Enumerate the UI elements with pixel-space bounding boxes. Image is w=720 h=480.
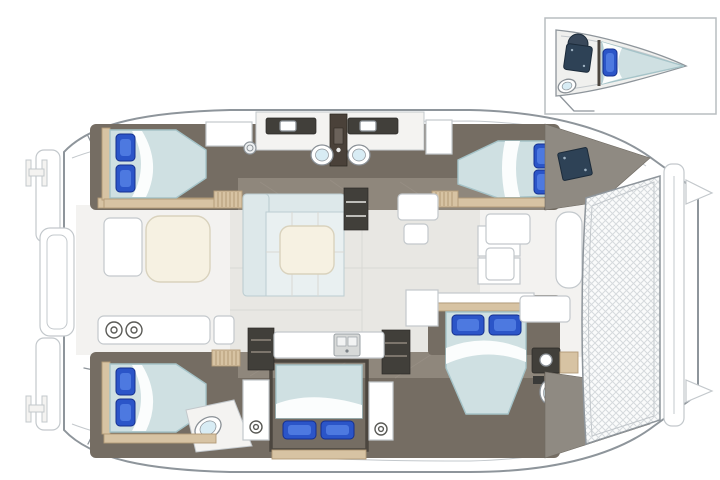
galley-sink-icon (334, 334, 360, 356)
bench-seat (486, 248, 514, 280)
bed-headboard (102, 128, 110, 200)
bench-seat (486, 214, 530, 244)
bow-lounge (556, 212, 582, 288)
sink-icon (360, 121, 376, 131)
porthole-icon (244, 142, 256, 154)
companionway-steps-icon (212, 350, 240, 366)
wardrobe (426, 120, 452, 154)
inset-shower-icon (563, 43, 592, 72)
shelf-unit (344, 188, 368, 230)
toilet-icon (311, 145, 333, 165)
bench-strip (272, 450, 366, 459)
pillow-icon (603, 49, 617, 76)
aft-starboard-cabin (102, 350, 252, 452)
pillow-icon (116, 165, 135, 192)
swim-platform-starboard (36, 338, 60, 430)
trampoline (582, 176, 660, 444)
wardrobe (206, 122, 252, 146)
fixture-block (533, 376, 544, 384)
bench-seat (104, 218, 142, 276)
pillow-icon (116, 399, 135, 426)
bench-strip (104, 434, 216, 443)
nav-seat (404, 224, 428, 244)
pillow-icon (116, 134, 135, 161)
bed-headboard (436, 303, 532, 311)
galley-cabinet (248, 328, 274, 370)
aft-bench (98, 316, 210, 344)
companionway-steps-icon (214, 191, 242, 208)
side-seat (214, 316, 234, 344)
pillow-icon (321, 421, 354, 439)
dining-table (146, 216, 210, 282)
coffee-table (280, 226, 334, 274)
side-cabinet (243, 380, 269, 440)
nav-desk (398, 194, 438, 220)
double-bed (110, 130, 206, 198)
pillow-icon (283, 421, 316, 439)
bench-strip (104, 199, 230, 208)
wood-floor-patch (560, 352, 578, 373)
pillow-icon (116, 368, 135, 395)
yacht-floorplan (0, 0, 720, 480)
headboard-wall (434, 293, 534, 303)
bench-seat (520, 296, 570, 322)
pillow-icon (489, 315, 521, 335)
galley-counter (274, 332, 384, 358)
bench-strip (456, 198, 552, 207)
toilet-icon (348, 145, 370, 165)
sink-icon (540, 354, 552, 366)
bed-headboard (102, 362, 110, 434)
bow-cabin-inset (545, 18, 716, 114)
galley-cabinet (382, 330, 410, 374)
pillow-icon (452, 315, 484, 335)
storage-cabinet (406, 290, 438, 326)
navy-deck-hatch-icon (557, 147, 592, 181)
sofa-side (243, 194, 269, 296)
floorplan-canvas (0, 0, 720, 480)
davit-platform (40, 228, 74, 336)
sink-icon (280, 121, 296, 131)
